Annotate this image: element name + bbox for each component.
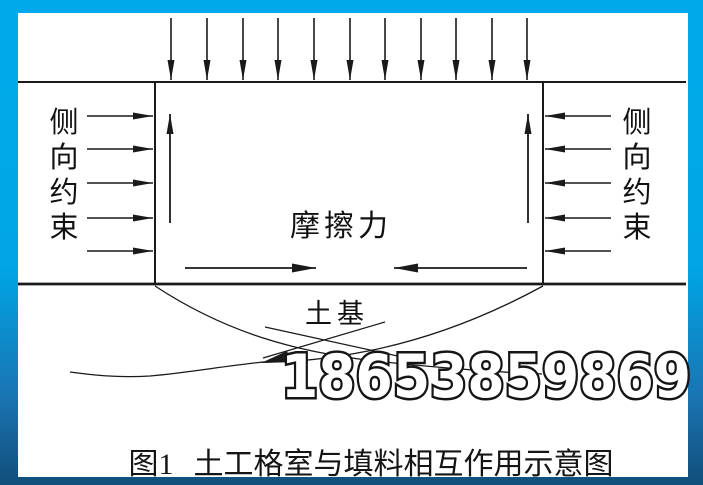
caption-number: 图1 [129, 448, 174, 481]
caption-title: 土工格室与填料相互作用示意图 [194, 448, 614, 481]
watermark-layer: 18653859869 [0, 0, 703, 485]
watermark-number: 18653859869 [281, 342, 691, 412]
figure-stage: 侧 向 约 束 侧 向 约 束 摩擦力 土基 18653859869 图1土工格… [0, 0, 703, 485]
figure-caption: 图1土工格室与填料相互作用示意图 [38, 439, 703, 483]
